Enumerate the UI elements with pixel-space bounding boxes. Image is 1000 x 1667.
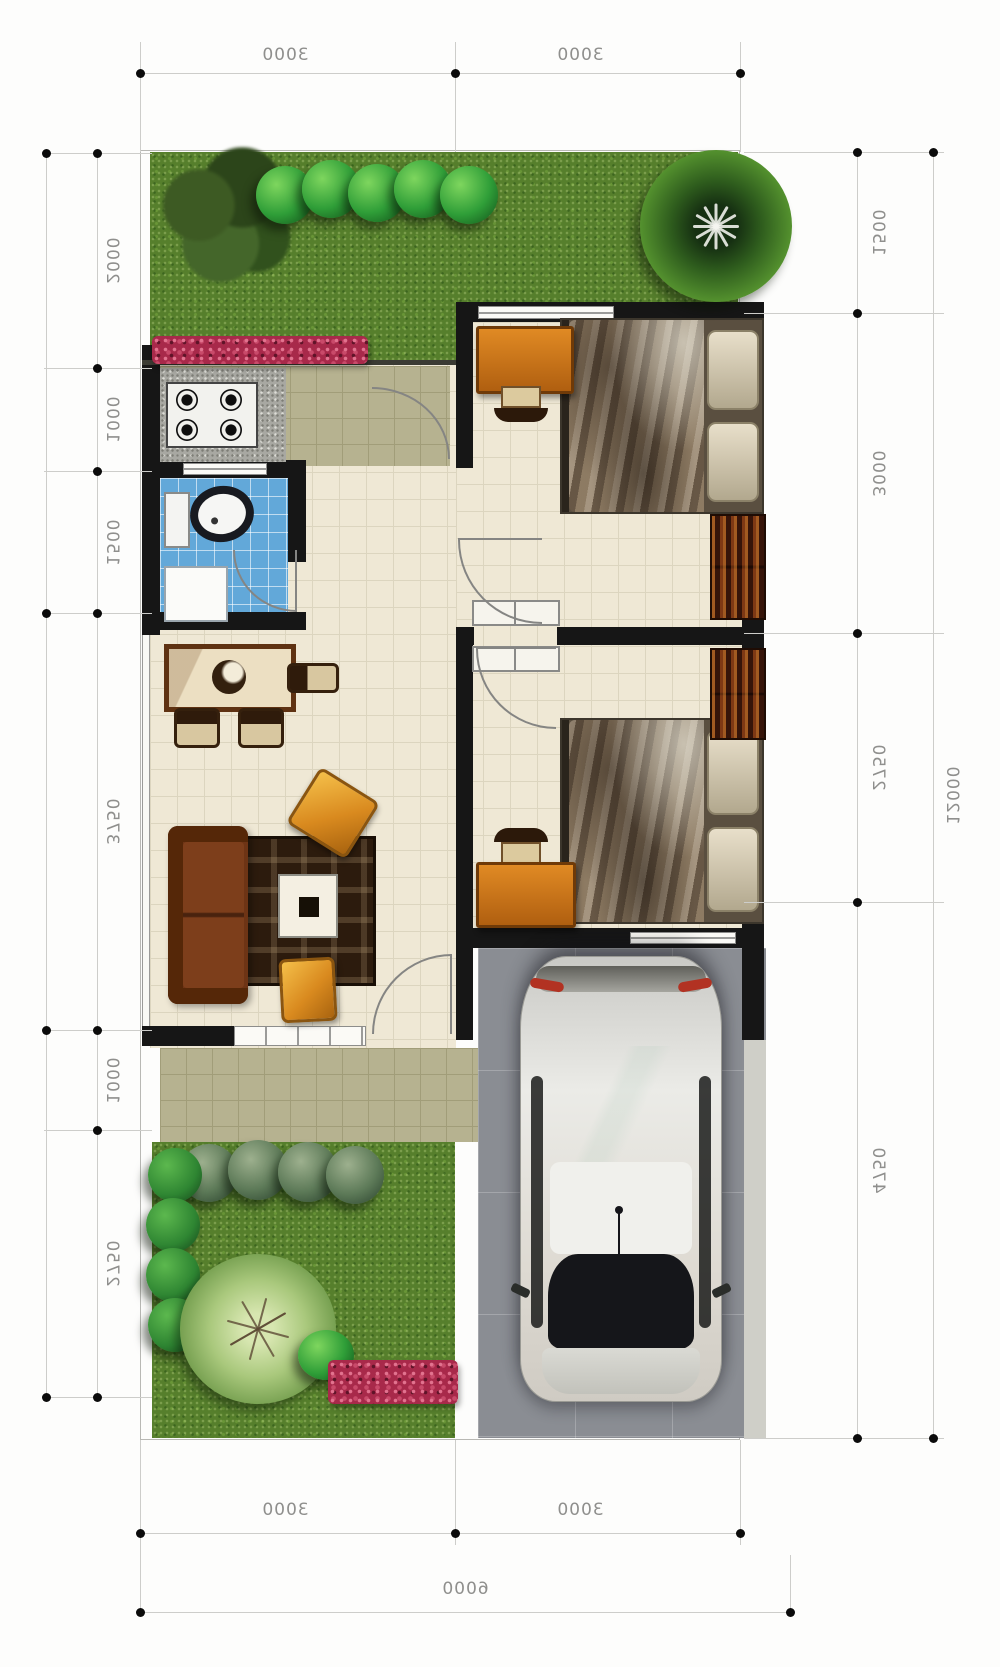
dim-label-left-1000a: 1000 [101,377,123,461]
wall-bottom-left-corner [142,1026,234,1046]
coffee-table [278,874,338,938]
pillow [707,730,759,815]
carport-side-strip [744,1040,766,1438]
window-wall-left-living [142,635,150,1026]
tree-branch [230,1312,286,1346]
dim-dot [736,1529,745,1538]
dim-dot [93,1026,102,1035]
stool-bedroom2 [494,828,548,864]
stool-seat [501,842,541,864]
bed1-blanket [569,320,704,512]
dining-chair-1 [174,708,220,748]
desk-bedroom2 [476,862,576,928]
dim-line-left-outer [46,153,47,1397]
dim-dot [853,629,862,638]
terrace-floor [160,1048,478,1142]
dim-label-bottom-right: 3000 [538,1499,622,1521]
car-windshield [548,1254,694,1350]
dim-dot [42,1026,51,1035]
pillow [707,827,759,912]
dim-dot [93,149,102,158]
burner [220,419,242,441]
dim-line-bottom-total [140,1612,790,1613]
hedge-bush [440,166,498,224]
dim-dot [451,1529,460,1538]
dim-line-bottom [140,1533,740,1534]
burner [176,419,198,441]
dim-label-right-3000: 3000 [867,431,889,515]
side-bush [148,1148,202,1202]
back-hedge-bush [326,1146,384,1204]
sofa [168,826,248,1004]
door-leaf-bedroom1 [458,538,542,540]
dim-dot [42,1393,51,1402]
pillow [707,422,759,503]
car-side-window-right [699,1076,711,1328]
door-leaf-terrace [450,954,452,1034]
dim-dot [929,148,938,157]
tree-back-garden [180,1254,336,1404]
dresser-bedroom2 [710,648,766,740]
car-hood [542,1348,700,1394]
car-side-window-left [531,1076,543,1328]
side-bush [146,1198,200,1252]
dim-dot [136,1608,145,1617]
dim-label-bottom-total: 6000 [423,1578,507,1600]
dim-dot [136,1529,145,1538]
wall-mid-left-stub [456,627,474,645]
dim-line-left-inner [97,153,98,1397]
wall-bedroom2-left [456,645,473,1040]
dim-dot [736,69,745,78]
dim-dot [42,149,51,158]
ext-line [790,1555,791,1612]
ext-line [744,902,944,903]
dresser-bedroom1 [710,514,766,620]
pillow [707,330,759,411]
dim-label-right-4750: 4750 [867,1128,889,1212]
stool-seat [501,386,541,408]
bed2-pillows [704,720,762,922]
dim-label-top-right: 3000 [538,44,622,66]
toilet-drain [211,517,219,525]
flower-bed-front [152,336,368,364]
dim-dot [93,1126,102,1135]
dim-dot [786,1608,795,1617]
dim-dot [853,309,862,318]
dim-dot [42,609,51,618]
ext-line [740,42,741,152]
sofa-back [168,826,183,1004]
dim-dot [136,69,145,78]
dim-dot [853,148,862,157]
dim-label-top-left: 3000 [243,44,327,66]
dim-line-right-inner [857,152,858,1438]
bed-bedroom2 [560,718,764,924]
dim-dot [93,1393,102,1402]
bed1-pillows [704,320,762,512]
dim-dot [93,467,102,476]
window-bedroom2-south [630,932,736,944]
ottoman-lower [278,957,337,1024]
dim-label-right-2750: 2750 [867,725,889,809]
wall-bedroom1-left [456,322,473,468]
ext-line [744,633,944,634]
table-bowl [212,660,246,694]
shower-tray [164,566,228,622]
dining-chair-right [287,663,339,693]
sofa-arm-top [168,826,248,842]
burner [220,389,242,411]
stool-back [494,828,548,842]
coffee-table-center [299,897,319,917]
burner [176,389,198,411]
wall-left-kitchen [142,345,160,635]
stool-bedroom1 [494,386,548,422]
door-leaf-bathroom [295,550,297,612]
ext-line [744,313,944,314]
ext-line [744,1438,944,1439]
dim-dot [853,1434,862,1443]
dim-dot [93,609,102,618]
dim-label-left-1000b: 1000 [101,1038,123,1122]
window-bathroom [183,463,267,475]
sofa-seat [183,842,244,988]
ext-line [140,42,141,152]
toilet-tank [164,492,190,548]
dining-chair-2 [238,708,284,748]
bed-bedroom1 [560,318,764,514]
stove [166,382,258,448]
door-leaf-bedroom2 [476,647,556,649]
dim-dot [93,364,102,373]
car [520,956,722,1402]
ext-line [140,1440,141,1612]
flower-bed-back [328,1360,458,1404]
stool-back [494,408,548,422]
dim-line-top [140,73,740,74]
desk-bedroom1 [476,326,574,394]
window-living-south [234,1026,366,1046]
dim-label-right-1500: 1500 [867,190,889,274]
bed2-blanket [569,720,704,922]
car-rear-window [546,1046,696,1162]
dim-label-left-1500: 1500 [101,500,123,584]
dim-dot [853,898,862,907]
floor-plan-canvas: 3000 3000 2000 1000 1500 3750 1000 2750 … [0,0,1000,1667]
ext-line [455,42,456,152]
dim-label-right-total: 12000 [941,753,963,837]
dim-line-right-outer [933,152,934,1438]
dim-dot [929,1434,938,1443]
wall-mid-bedrooms [557,627,764,645]
dim-label-left-2750: 2750 [101,1221,123,1305]
dim-label-left-2000: 2000 [101,218,123,302]
sofa-arm-bottom [168,988,248,1004]
dim-label-left-3750: 3750 [101,779,123,863]
ext-line [744,152,944,153]
dim-dot [451,69,460,78]
dim-label-bottom-left: 3000 [243,1499,327,1521]
tree-front-right [640,150,792,302]
